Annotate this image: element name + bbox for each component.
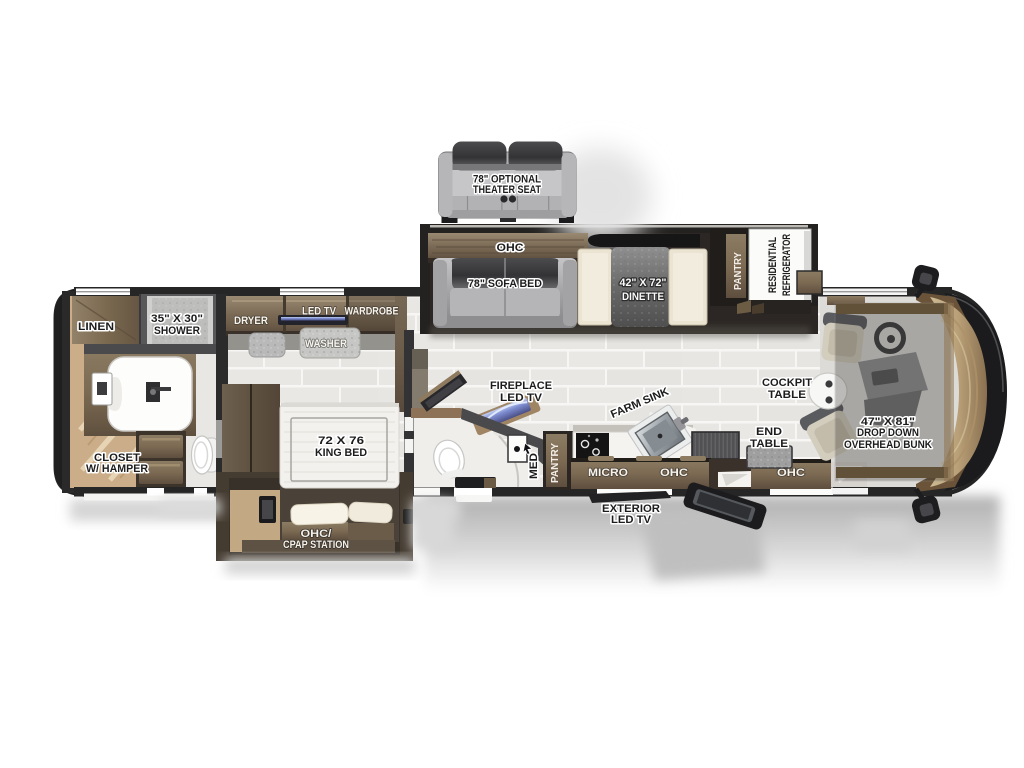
svg-text:42" X 72": 42" X 72" (620, 277, 667, 289)
svg-text:LED TV: LED TV (611, 514, 652, 526)
svg-text:W/ HAMPER: W/ HAMPER (86, 463, 148, 475)
svg-text:WASHER: WASHER (305, 338, 347, 350)
svg-text:END: END (756, 426, 782, 438)
svg-text:DRYER: DRYER (234, 315, 268, 327)
svg-text:CPAP STATION: CPAP STATION (283, 539, 349, 551)
svg-text:35" X 30": 35" X 30" (151, 313, 203, 325)
svg-text:COCKPIT: COCKPIT (762, 377, 812, 389)
svg-text:TABLE: TABLE (750, 438, 788, 450)
svg-text:RESIDENTIAL: RESIDENTIAL (767, 237, 779, 293)
svg-text:KING BED: KING BED (315, 447, 367, 459)
svg-text:FIREPLACE: FIREPLACE (490, 380, 552, 392)
svg-text:DINETTE: DINETTE (622, 291, 664, 303)
svg-text:TABLE: TABLE (768, 389, 806, 401)
svg-text:REFRIGERATOR: REFRIGERATOR (781, 234, 793, 296)
svg-text:PANTRY: PANTRY (732, 252, 744, 290)
svg-text:MED: MED (528, 453, 540, 479)
svg-text:LED TV: LED TV (302, 306, 337, 318)
svg-text:SHOWER: SHOWER (154, 325, 200, 337)
svg-text:78" SOFA BED: 78" SOFA BED (468, 278, 542, 290)
svg-text:PANTRY: PANTRY (549, 443, 561, 483)
svg-text:THEATER SEAT: THEATER SEAT (473, 184, 541, 196)
svg-text:OVERHEAD BUNK: OVERHEAD BUNK (844, 439, 932, 451)
svg-text:LED TV: LED TV (500, 392, 543, 404)
svg-text:OHC: OHC (497, 242, 524, 254)
svg-text:WARDROBE: WARDROBE (345, 306, 399, 318)
svg-text:MICRO: MICRO (588, 467, 628, 479)
svg-text:72 X 76: 72 X 76 (318, 435, 364, 447)
svg-text:OHC: OHC (660, 467, 688, 479)
svg-text:DROP DOWN: DROP DOWN (857, 427, 919, 439)
svg-text:LINEN: LINEN (78, 321, 114, 333)
